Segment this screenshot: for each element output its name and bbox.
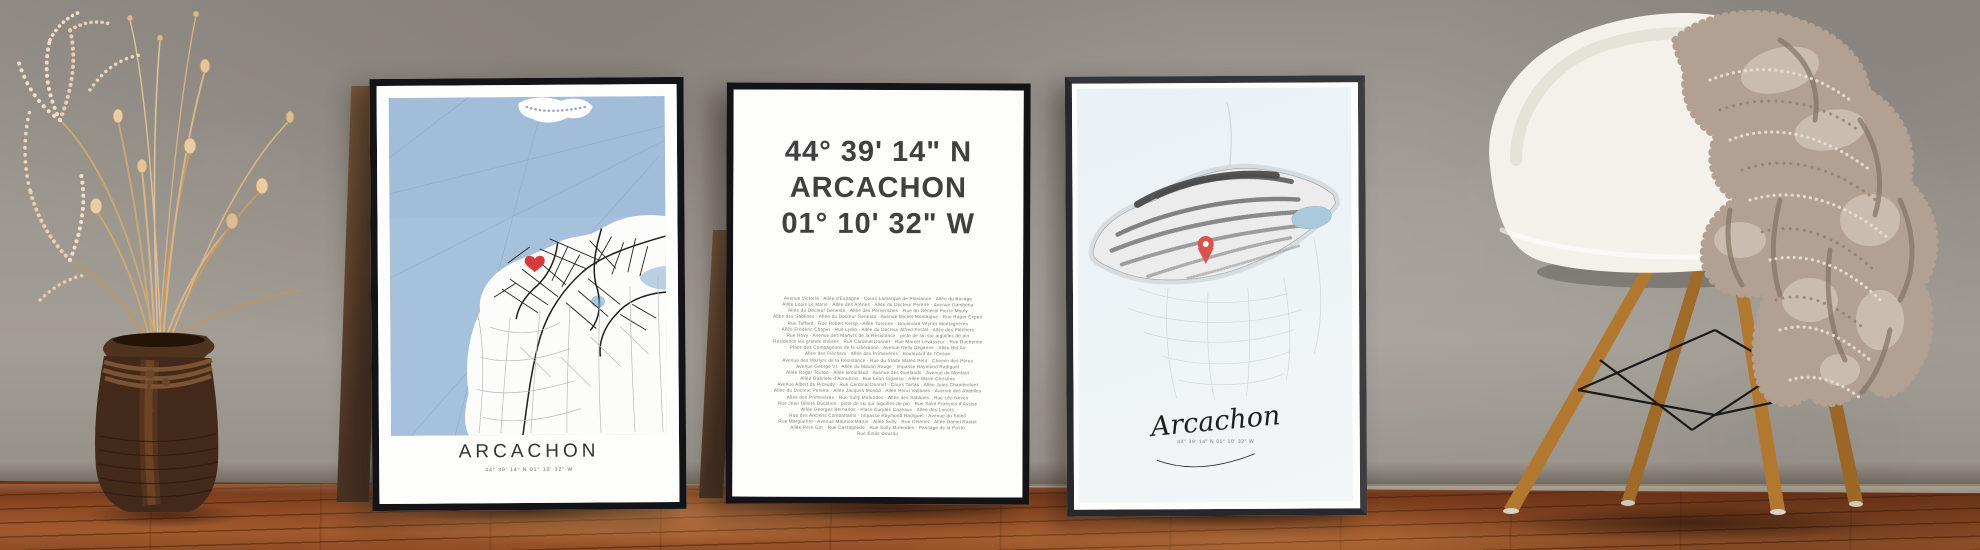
poster1-mat: ARCACHON 44° 39' 14" N 01° 10' 32" W <box>377 84 680 504</box>
poster1-coordinates: 44° 39' 14" N 01° 10' 32" W <box>379 466 679 474</box>
chair-with-blanket <box>1480 0 1980 550</box>
poster1-title: ARCACHON <box>379 440 679 464</box>
poster3-title: Arcachon <box>1150 400 1282 443</box>
signature-flourish <box>1157 454 1255 467</box>
room-photo: ARCACHON 44° 39' 14" N 01° 10' 32" W 44°… <box>0 0 1980 550</box>
poster3-mat: Arcachon 44° 39' 14" N 01° 10' 32" W <box>1072 82 1360 509</box>
poster2-headline: 44° 39' 14" N ARCACHON 01° 10' 32" W <box>733 133 1023 242</box>
wooden-vase <box>95 332 218 512</box>
poster-minimal-map: Arcachon 44° 39' 14" N 01° 10' 32" W <box>1065 75 1367 517</box>
poster3-map-area: Arcachon 44° 39' 14" N 01° 10' 32" W <box>1077 87 1353 502</box>
headline-latitude: 44° 39' 14" N <box>733 133 1023 170</box>
dried-flowers-and-vase <box>0 0 340 550</box>
poster-typographic: 44° 39' 14" N ARCACHON 01° 10' 32" W Ave… <box>725 82 1030 504</box>
headline-city: ARCACHON <box>733 169 1023 206</box>
poster1-caption: ARCACHON 44° 39' 14" N 01° 10' 32" W <box>379 440 679 474</box>
street-name-list: Avenue Victoria · Allée d'Espagne · Cour… <box>772 296 982 438</box>
poster-classic-map: ARCACHON 44° 39' 14" N 01° 10' 32" W <box>369 77 686 511</box>
poster3-caption: Arcachon 44° 39' 14" N 01° 10' 32" W <box>1079 405 1353 445</box>
poster2-mat: 44° 39' 14" N ARCACHON 01° 10' 32" W Ave… <box>732 89 1023 497</box>
arcachon-map-graphic <box>389 96 667 436</box>
street-list-line: Rue Émile Doussu <box>772 431 982 438</box>
flower-stems <box>60 15 300 340</box>
inland-lake <box>591 295 605 307</box>
headline-longitude: 01° 10' 32" W <box>733 205 1023 242</box>
